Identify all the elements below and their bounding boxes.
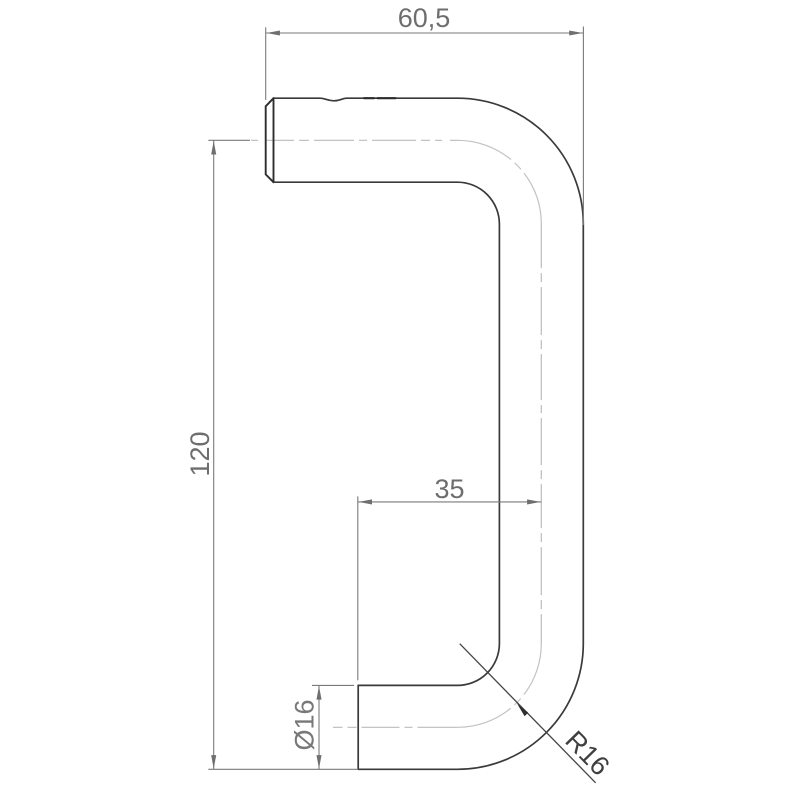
svg-text:35: 35 [434,474,464,504]
svg-text:Ø16: Ø16 [290,699,320,750]
svg-text:60,5: 60,5 [398,3,451,33]
svg-text:120: 120 [185,431,215,476]
